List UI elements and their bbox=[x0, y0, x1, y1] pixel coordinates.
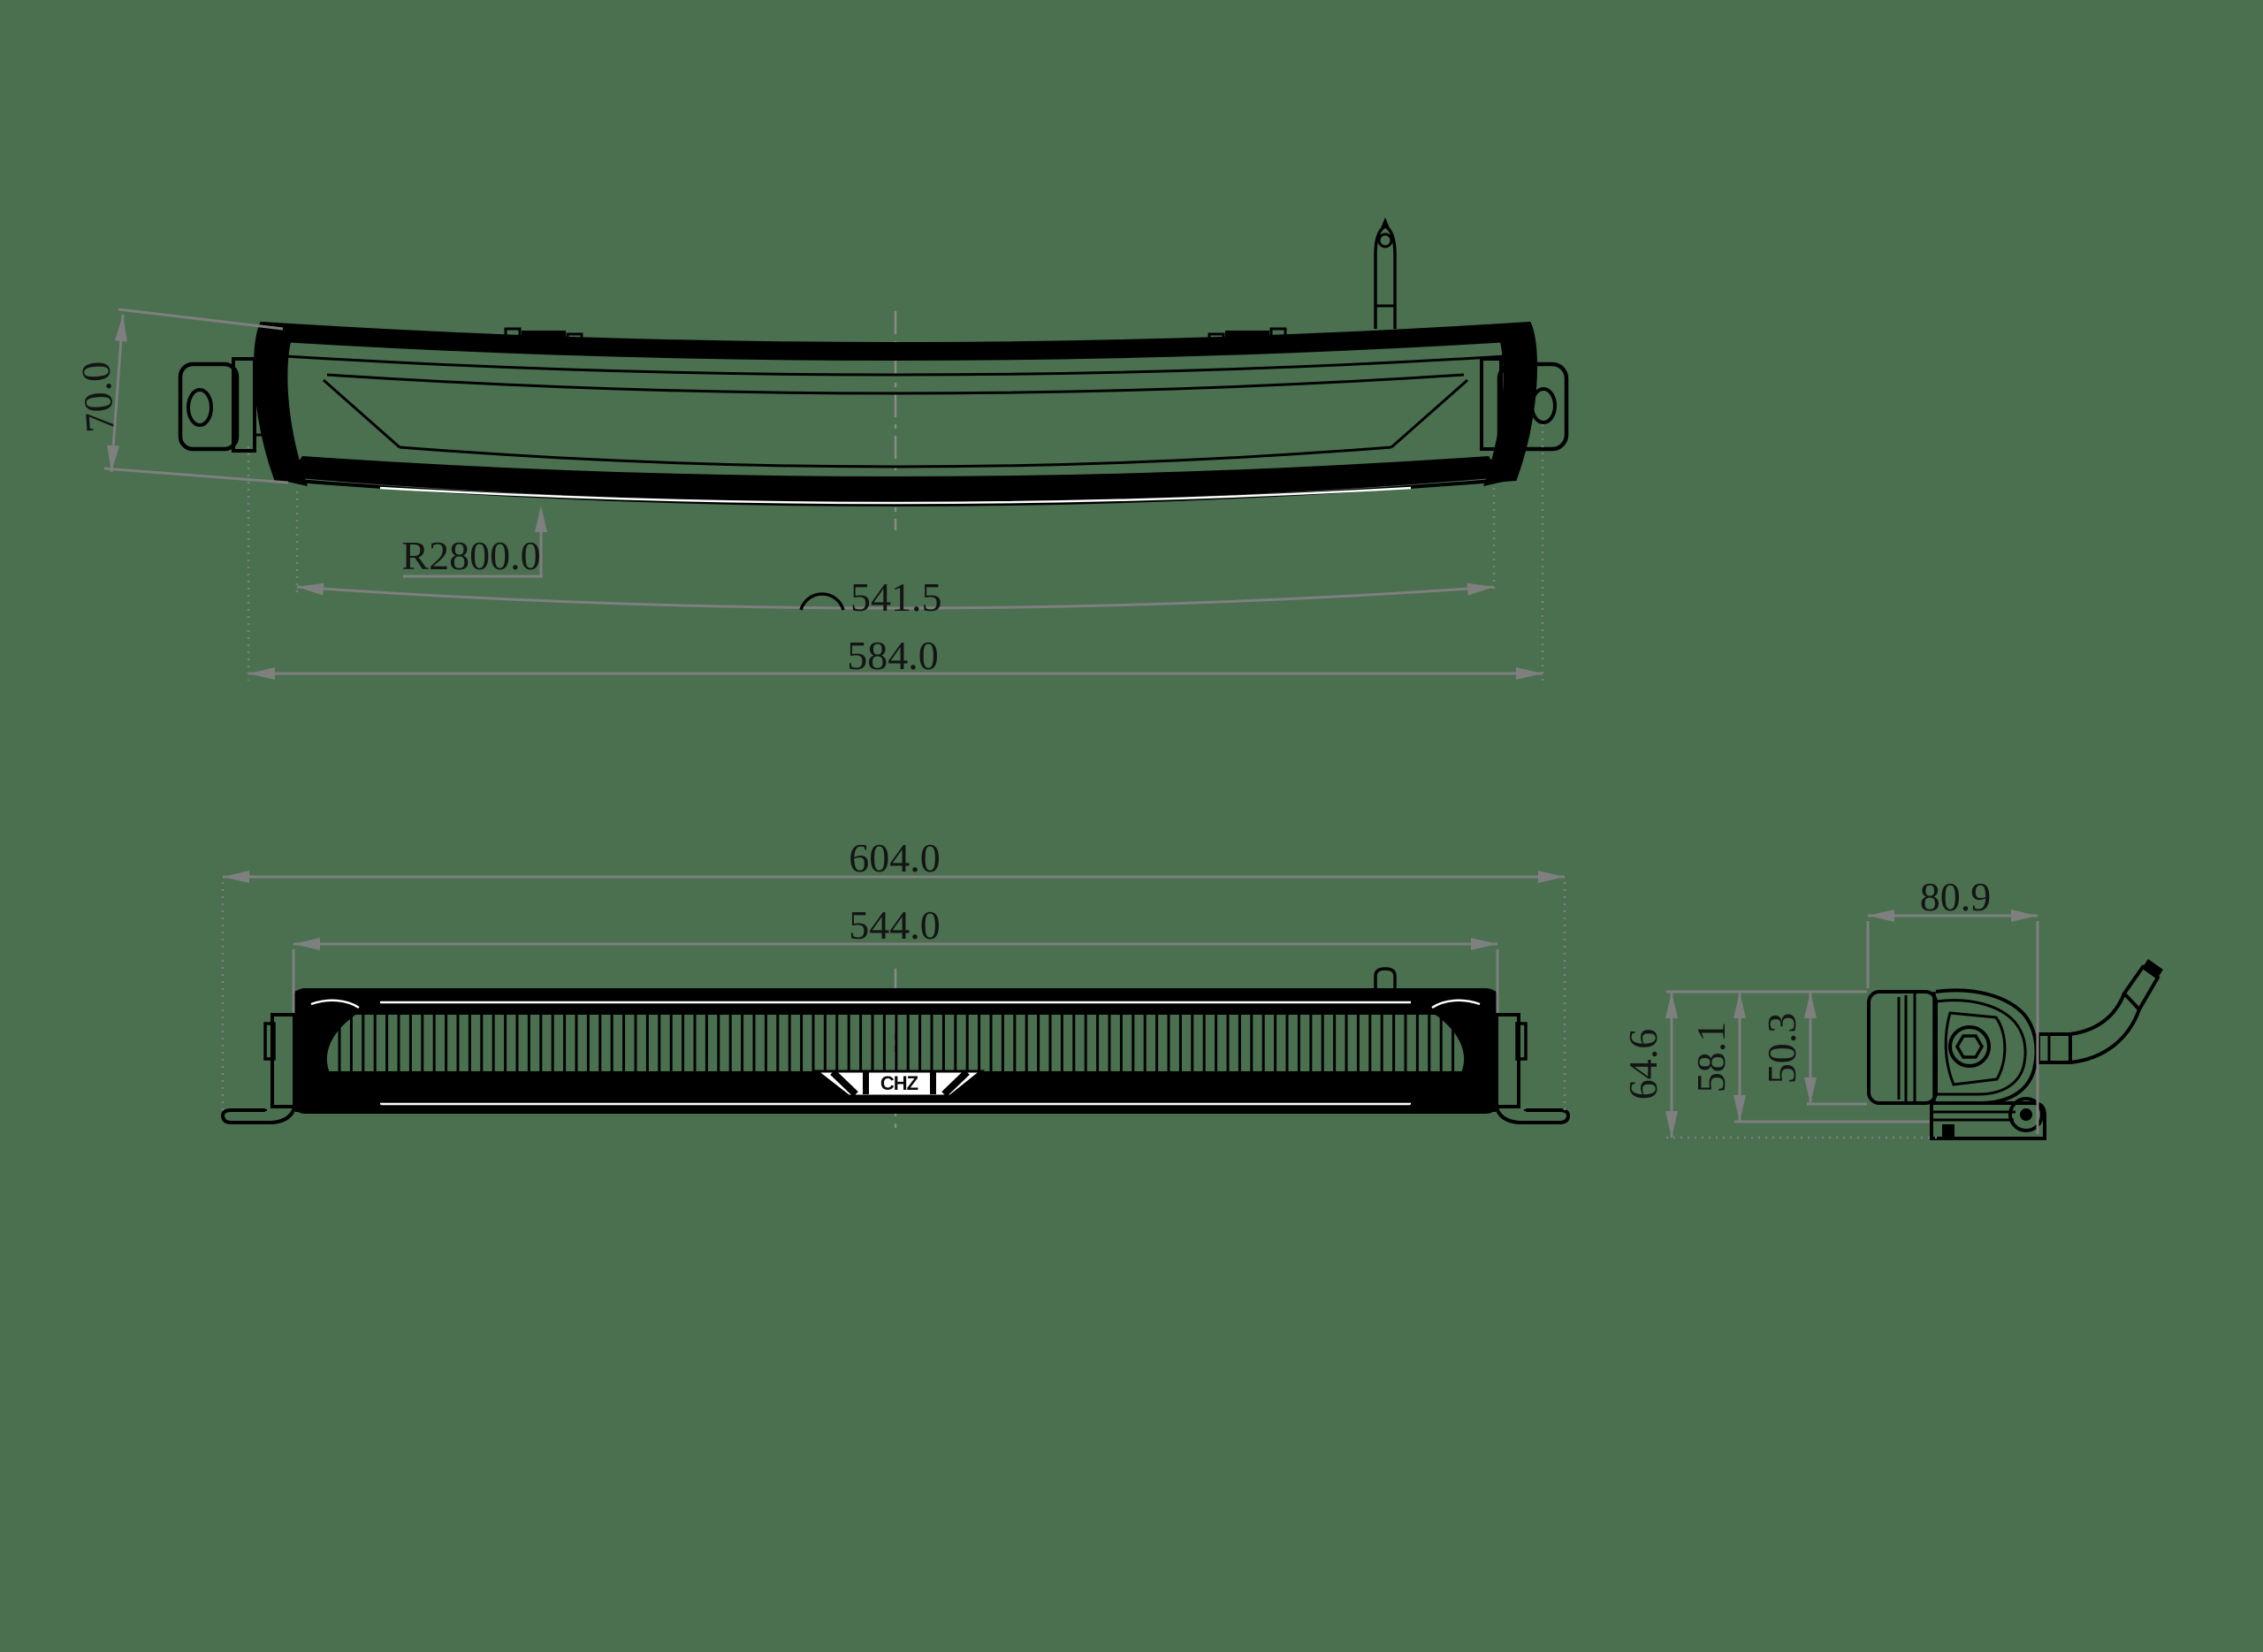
front-right-bracket bbox=[1496, 1015, 1568, 1123]
top-bar-window-right-strut bbox=[1391, 380, 1467, 447]
front-left-bracket bbox=[223, 1015, 295, 1123]
side-view: 80.9 64.6 58.1 50.3 bbox=[1620, 874, 2163, 1138]
dim-overall-length: 604.0 bbox=[223, 835, 1565, 1110]
dim-bracket-height: 58.1 bbox=[1688, 992, 1746, 1122]
top-bar-bottom-band bbox=[288, 456, 1503, 503]
dim-end-height-label: 70.0 bbox=[72, 360, 122, 434]
drawing-canvas: 70.0 R2800.0 541.5 584.0 bbox=[0, 0, 2263, 1652]
dim-overall-height-label: 64.6 bbox=[1620, 1029, 1665, 1100]
technical-drawing: 70.0 R2800.0 541.5 584.0 bbox=[0, 0, 2263, 1652]
side-bracket-tab bbox=[1942, 1124, 1954, 1138]
top-bar-left-endcap bbox=[255, 324, 308, 486]
front-view: CHZ 604.0 bbox=[223, 835, 1568, 1130]
dim-lens-height: 50.3 bbox=[1759, 992, 1817, 1104]
top-bar-right-endcap bbox=[1483, 324, 1535, 486]
dim-overall-height: 64.6 bbox=[1620, 992, 1678, 1138]
top-left-bracket bbox=[180, 359, 265, 451]
dim-depth-label: 80.9 bbox=[1920, 874, 1992, 919]
brand-logo: CHZ bbox=[880, 1072, 918, 1094]
dim-hole-span-label: 584.0 bbox=[847, 633, 939, 678]
dim-lens-height-label: 50.3 bbox=[1759, 1013, 1804, 1085]
side-bolt-hex-socket bbox=[1957, 1036, 1982, 1057]
dim-bend-radius: R2800.0 bbox=[401, 506, 547, 578]
top-bar-window-left-strut bbox=[324, 380, 400, 447]
dim-bracket-height-label: 58.1 bbox=[1688, 1022, 1733, 1093]
side-bracket bbox=[1932, 1099, 2045, 1138]
lens-striations bbox=[339, 1015, 1453, 1071]
top-view: 70.0 R2800.0 541.5 584.0 bbox=[72, 217, 1566, 681]
top-wire-stub bbox=[1375, 217, 1395, 329]
side-wire bbox=[2038, 959, 2163, 1062]
side-lens-block bbox=[1869, 992, 1936, 1103]
dim-inner-span-label: 544.0 bbox=[849, 902, 941, 948]
side-housing bbox=[1936, 990, 2037, 1103]
dim-bend-radius-label: R2800.0 bbox=[401, 533, 540, 578]
front-wire-stub bbox=[1375, 969, 1395, 990]
dim-arc-length-label: 541.5 bbox=[850, 575, 942, 620]
dim-overall-length-label: 604.0 bbox=[849, 835, 941, 880]
